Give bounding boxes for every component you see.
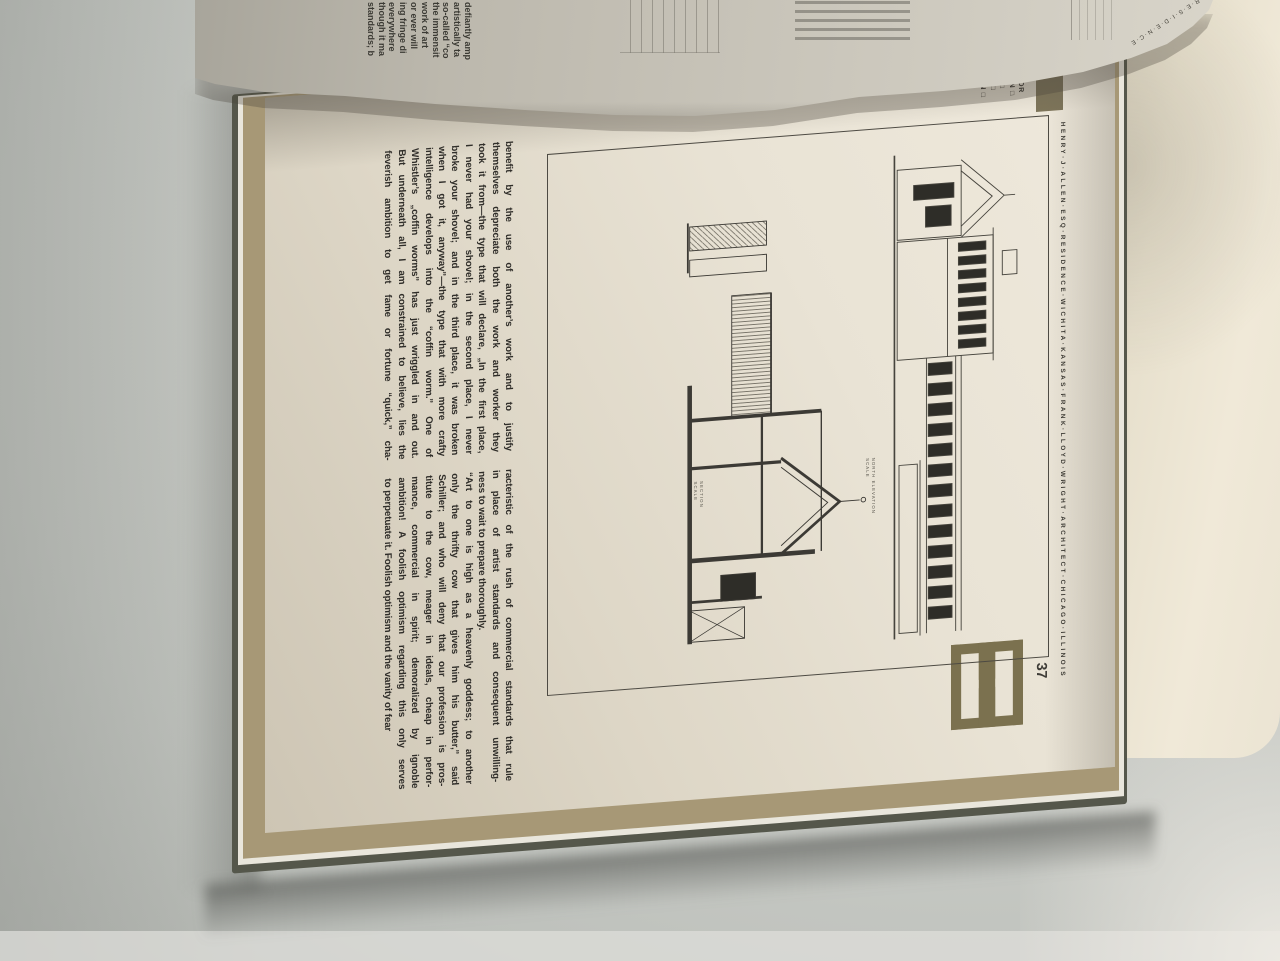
turning-page-text-line: everywhere <box>387 2 398 110</box>
section-label: SECTION SCALE <box>692 481 704 509</box>
architectural-drawings <box>548 116 1048 695</box>
text-line: when I got it, anyway”—the type that wit… <box>435 146 448 457</box>
turning-page-drawing-fragment <box>1071 0 1112 40</box>
text-line: broke your shovel; and in the third plac… <box>448 145 461 456</box>
text-line: intelligence develops into the “coffin w… <box>421 147 434 458</box>
turning-page-drawing-fragment <box>620 0 720 53</box>
text-line: to perpetuate it. Foolish optimism and t… <box>381 478 394 791</box>
turning-page-drawing-fragment <box>795 0 910 46</box>
section-label-line: SECTION <box>698 481 704 508</box>
text-line: mance, commercial in spirit; demoralized… <box>408 476 421 789</box>
text-line: Schiller; and who will deny that our pro… <box>435 474 448 787</box>
turning-page-text-line: the immensit <box>430 2 441 110</box>
section-drawing <box>688 210 866 645</box>
text-line: feverish ambition to get fame or fortune… <box>381 150 394 461</box>
text-line: Whistler’s „coffin worms” has just wrigg… <box>408 148 421 459</box>
text-line: only the thrifty cow that gives him his … <box>448 473 461 786</box>
text-line: ness to wait to prepare thoroughly. <box>475 471 488 784</box>
text-column-1: benefit by the use of another’s work and… <box>381 141 515 461</box>
text-line: themselves depreciate both the work and … <box>488 142 501 453</box>
text-line: racteristic of the rush of commercial st… <box>502 469 515 782</box>
elevation-drawing <box>894 146 1016 639</box>
elevation-label: NORTH ELEVATION SCALE <box>864 457 876 514</box>
elevation-label-line: NORTH ELEVATION <box>870 457 876 514</box>
turning-page-text-line: though it ma <box>376 2 387 110</box>
page-right-shading <box>1045 32 1115 772</box>
turning-page-text-line: ing fringe di <box>397 2 408 110</box>
turning-page-text-line: so-called “co <box>441 2 452 110</box>
text-line: “Art to one is high as a heavenly goddes… <box>461 472 474 785</box>
text-line: I never had your shovel; in the second p… <box>461 144 474 455</box>
turning-page-text-line: artistically ta <box>451 2 462 110</box>
text-line: in place of artist standards and consequ… <box>488 470 501 783</box>
turning-page-text-line: or ever will <box>408 2 419 110</box>
turning-page-text-line: standards; b <box>365 2 376 110</box>
text-line: titute to the cow, meager in ideals, che… <box>421 475 434 788</box>
drawing-plate: NORTH ELEVATION SCALE SECTION SCALE <box>547 115 1049 696</box>
text-line: took it from—the type that will declare,… <box>475 143 488 454</box>
text-column-2: racteristic of the rush of commercial st… <box>381 469 515 791</box>
main-page: ENCE FOR J. ALLEN □ NORTH □ VATION □ SEC… <box>265 32 1115 833</box>
book-photo: ENCE FOR J. ALLEN □ NORTH □ VATION □ SEC… <box>0 0 1280 961</box>
text-line: But underneath all, I am constrained to … <box>394 149 407 460</box>
turning-page-text-line: work of art <box>419 2 430 110</box>
turning-page-text-line: defiantly amp <box>462 2 473 110</box>
book: ENCE FOR J. ALLEN □ NORTH □ VATION □ SEC… <box>265 32 1115 833</box>
text-line: benefit by the use of another’s work and… <box>502 141 515 452</box>
text-line: ambition! A foolish optimism regarding t… <box>394 477 407 790</box>
turning-page-text-fragments: defiantly amp artistically ta so-called … <box>363 2 473 110</box>
